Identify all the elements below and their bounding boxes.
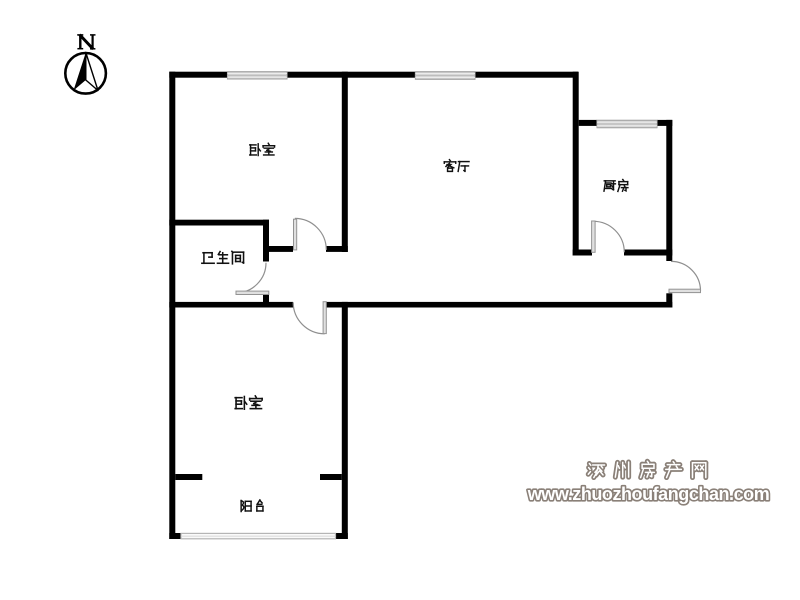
svg-text:www.zhuozhoufangchan.com: www.zhuozhoufangchan.com (527, 484, 770, 504)
